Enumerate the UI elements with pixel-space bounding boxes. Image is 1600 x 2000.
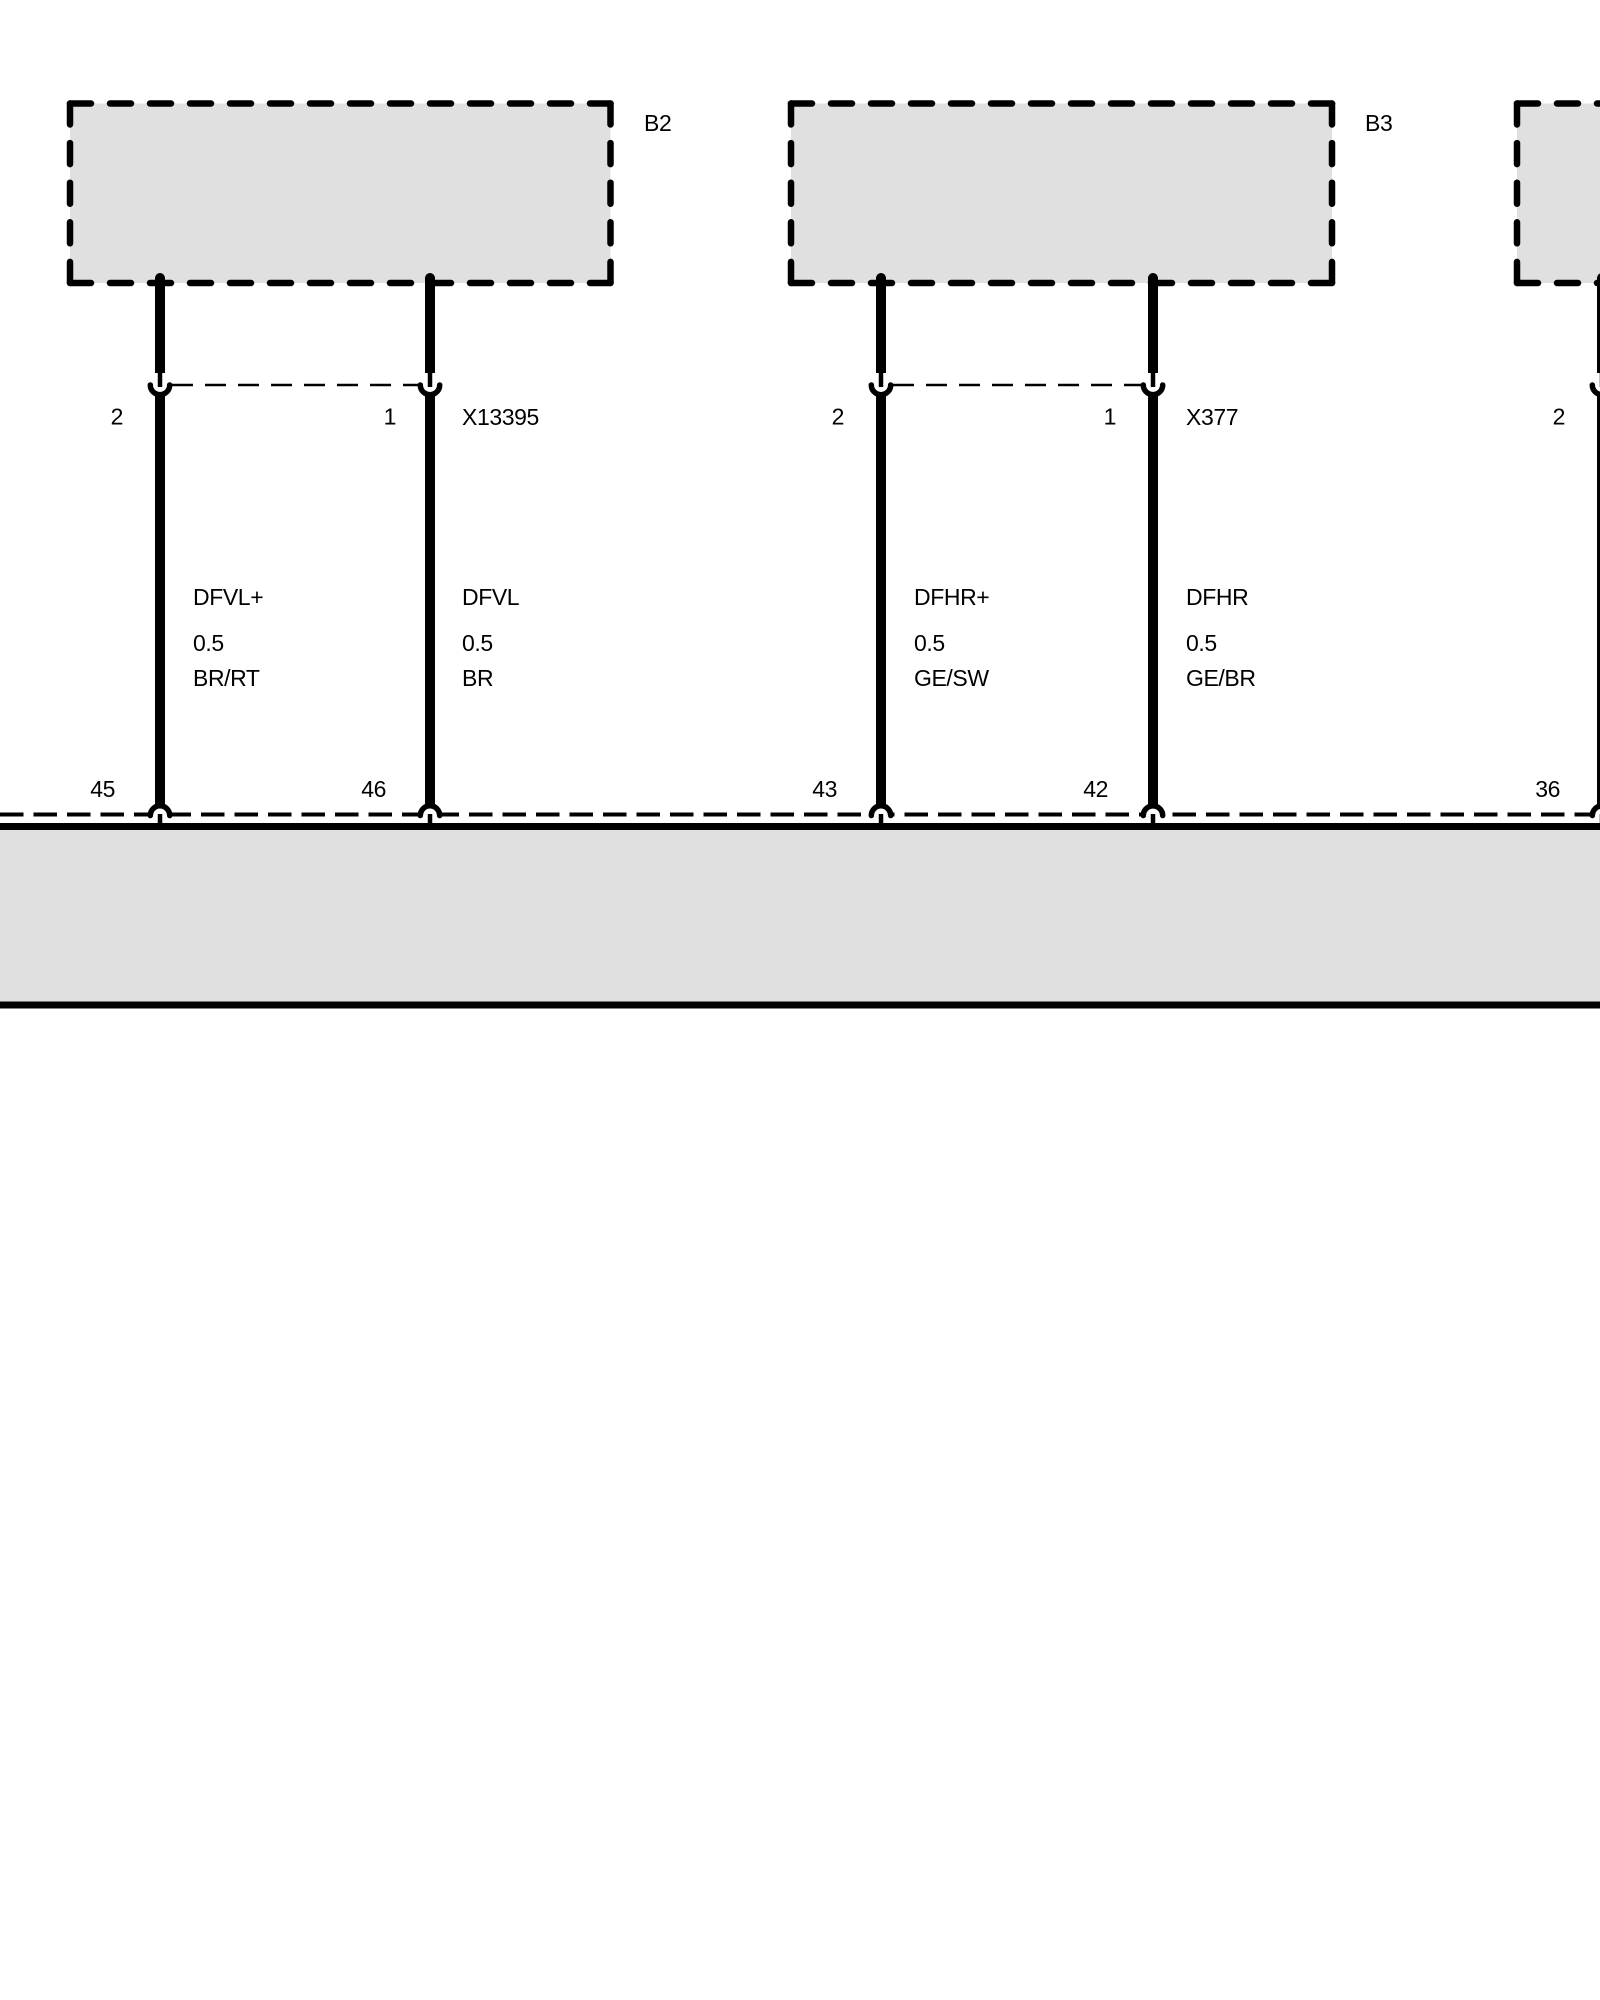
- svg-text:36: 36: [1535, 776, 1560, 802]
- svg-text:2: 2: [832, 404, 844, 430]
- svg-text:2: 2: [111, 404, 123, 430]
- svg-text:DFHR: DFHR: [1186, 584, 1248, 610]
- svg-text:2: 2: [1553, 404, 1565, 430]
- svg-text:GE/SW: GE/SW: [914, 665, 989, 691]
- svg-text:43: 43: [812, 776, 837, 802]
- svg-text:DFHR+: DFHR+: [914, 584, 989, 610]
- svg-text:1: 1: [384, 404, 396, 430]
- svg-text:45: 45: [90, 776, 115, 802]
- svg-text:GE/BR: GE/BR: [1186, 665, 1256, 691]
- svg-text:X377: X377: [1186, 404, 1238, 430]
- svg-text:BR: BR: [462, 665, 493, 691]
- svg-text:0.5: 0.5: [462, 630, 493, 656]
- svg-text:X13395: X13395: [462, 404, 539, 430]
- svg-text:B2: B2: [644, 110, 671, 136]
- svg-text:B3: B3: [1365, 110, 1392, 136]
- svg-text:0.5: 0.5: [193, 630, 224, 656]
- svg-text:0.5: 0.5: [1186, 630, 1217, 656]
- svg-text:42: 42: [1083, 776, 1108, 802]
- svg-text:DFVL: DFVL: [462, 584, 520, 610]
- svg-text:BR/RT: BR/RT: [193, 665, 260, 691]
- svg-text:0.5: 0.5: [914, 630, 945, 656]
- svg-text:DFVL+: DFVL+: [193, 584, 263, 610]
- svg-text:46: 46: [361, 776, 386, 802]
- svg-text:1: 1: [1104, 404, 1116, 430]
